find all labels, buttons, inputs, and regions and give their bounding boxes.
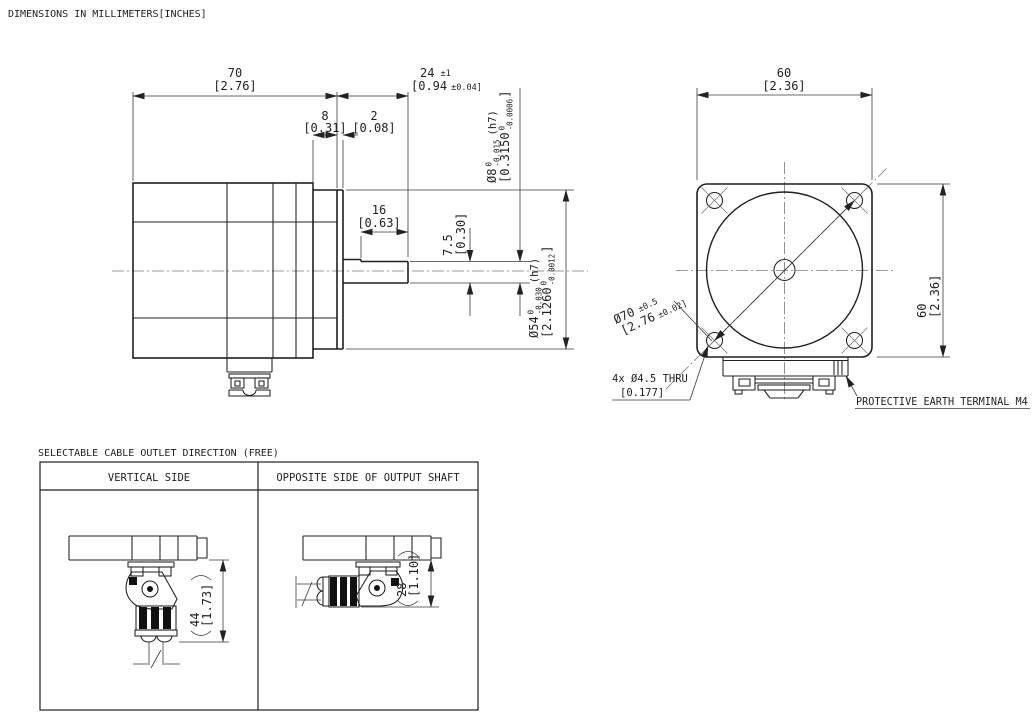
- cable-outlet-section: SELECTABLE CABLE OUTLET DIRECTION (FREE)…: [38, 448, 478, 710]
- pilot-boss: [313, 190, 343, 349]
- mounting-holes-note-line1: 4x Ø4.5 THRU: [612, 373, 688, 385]
- svg-text:[0.30]: [0.30]: [454, 213, 468, 256]
- earth-terminal: [834, 360, 842, 375]
- pilot-diameter-label: Ø540-0.030(h7) [2.12600-0.0012]: [527, 246, 557, 338]
- dim-60-top-inch: [2.36]: [762, 79, 805, 93]
- dim-60-top-mm: 60: [777, 66, 791, 80]
- earth-terminal-label: PROTECTIVE EARTH TERMINAL M4: [856, 397, 1028, 408]
- dim-8-inch: [0.31]: [303, 121, 346, 135]
- engineering-drawing: DIMENSIONS IN MILLIMETERS[INCHES]: [0, 0, 1032, 727]
- svg-text:60: 60: [915, 304, 929, 318]
- bolt-circle-label: Ø70±0.5 [2.76±0.02]: [611, 283, 688, 338]
- drawing-title: DIMENSIONS IN MILLIMETERS[INCHES]: [8, 9, 207, 20]
- cable-gland-vertical: [126, 562, 177, 642]
- dim-2-inch: [0.08]: [352, 121, 395, 135]
- svg-text:[2.12600-0.0012]: [2.12600-0.0012]: [540, 246, 557, 338]
- dim-24-inch: [0.94±0.04]: [411, 79, 482, 93]
- motor-body: [133, 183, 337, 358]
- side-view: 70 [2.76] 24±1 [0.94±0.04] 8 [0.31] 2 [0…: [112, 66, 588, 396]
- vertical-side-drawing: 44 [1.73]: [69, 536, 229, 668]
- column-header-vertical-side: VERTICAL SIDE: [108, 472, 190, 484]
- cable-outlet-heading: SELECTABLE CABLE OUTLET DIRECTION (FREE): [38, 448, 279, 459]
- svg-text:[1.10]: [1.10]: [407, 554, 421, 597]
- dim-24-mm: 24±1: [420, 66, 451, 80]
- shaft-diameter-label: Ø80-0.015(h7) [0.31500-0.0006]: [485, 91, 515, 183]
- svg-text:7.5: 7.5: [441, 234, 455, 256]
- dim-44: 44 [1.73]: [188, 584, 214, 627]
- cable-break-vertical: [133, 642, 180, 668]
- cable-gland-horizontal: [317, 562, 403, 607]
- dim-70-mm: 70: [228, 66, 242, 80]
- front-view: 60 [2.36] 60 [2.36] Ø70±0.5 [2.76±0.02] …: [611, 66, 1030, 409]
- svg-text:[2.36]: [2.36]: [928, 275, 942, 318]
- mounting-holes-note-line2: [0.177]: [620, 387, 664, 399]
- front-centerlines: [666, 162, 893, 402]
- dim-60-right: 60 [2.36]: [915, 275, 942, 318]
- column-header-opposite-side: OPPOSITE SIDE OF OUTPUT SHAFT: [276, 472, 460, 484]
- dim-70-inch: [2.76]: [213, 79, 256, 93]
- svg-text:[1.73]: [1.73]: [200, 584, 214, 627]
- svg-text:[0.31500-0.0006]: [0.31500-0.0006]: [498, 91, 515, 183]
- dim-16-inch: [0.63]: [357, 216, 400, 230]
- dim-7-5: 7.5 [0.30]: [441, 213, 468, 256]
- side-view-dimensions: 70 [2.76] 24±1 [0.94±0.04] 8 [0.31] 2 [0…: [133, 66, 574, 349]
- cable-connector-front: [723, 357, 848, 398]
- drawing-canvas: DIMENSIONS IN MILLIMETERS[INCHES]: [0, 0, 1032, 727]
- opposite-side-drawing: 28 [1.10]: [296, 536, 441, 608]
- dim-16-mm: 16: [372, 203, 386, 217]
- cable-connector-side: [227, 358, 272, 396]
